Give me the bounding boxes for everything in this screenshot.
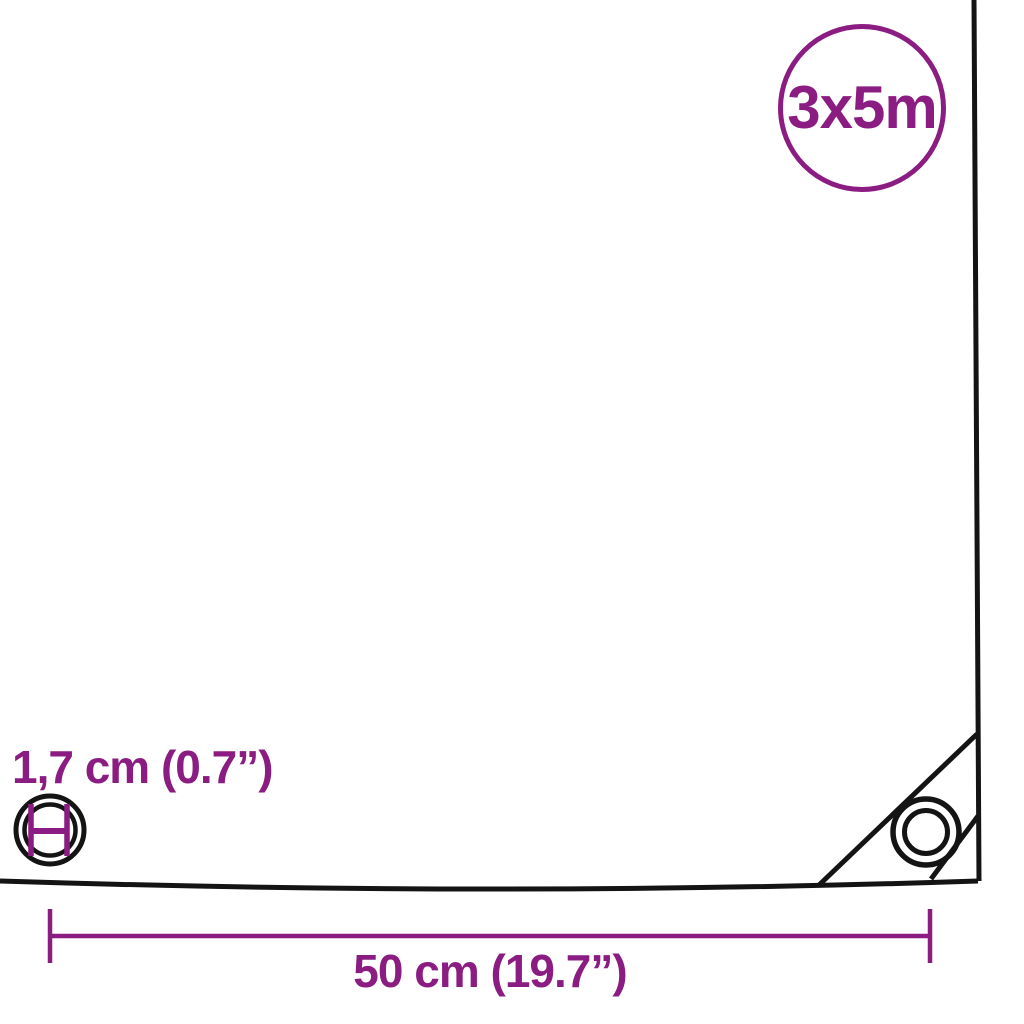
tarpaulin-dimension-diagram: 3x5m 1,7 cm (0.7”) 50 cm (19.7”) [0, 0, 1024, 1024]
tarp-right-edge [974, 0, 979, 881]
corner-eyelet-icon [893, 799, 959, 865]
eyelet-spacing-label: 50 cm (19.7”) [290, 946, 690, 997]
eyelet-diameter-marker [31, 804, 67, 856]
size-badge-label: 3x5m [787, 78, 936, 138]
tarp-bottom-edge [0, 881, 978, 889]
eyelet-diameter-label: 1,7 cm (0.7”) [12, 742, 273, 793]
measured-eyelet-icon [16, 796, 84, 864]
corner-eyelet-inner-ring [905, 811, 948, 854]
size-badge: 3x5m [778, 24, 946, 192]
